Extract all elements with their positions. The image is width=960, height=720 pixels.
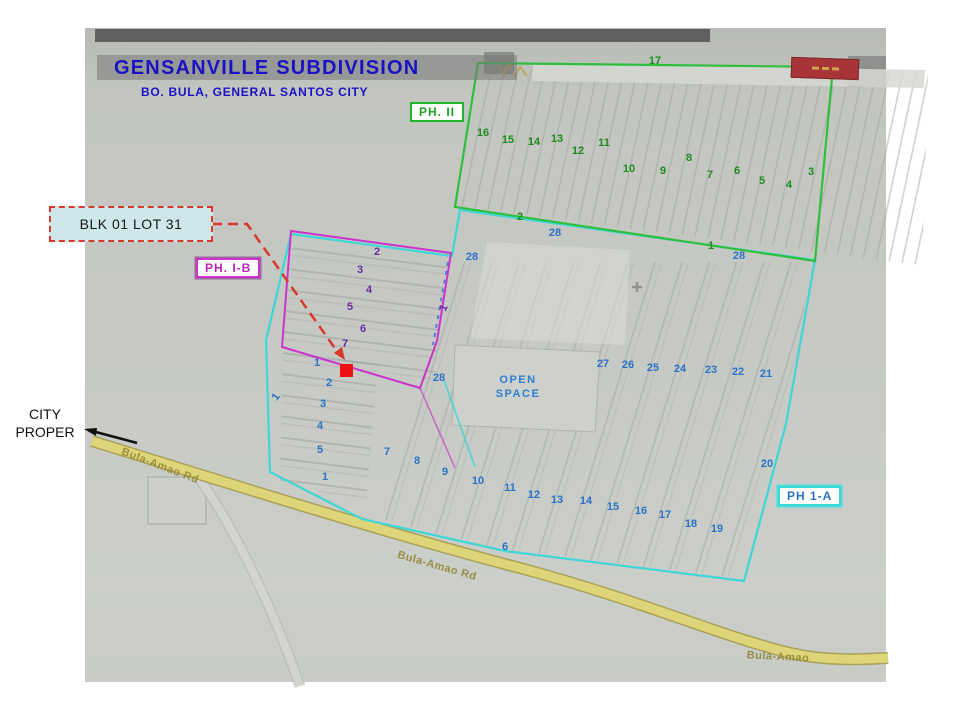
phase1a-block-20: 20 xyxy=(761,458,773,470)
red-stamp-badge xyxy=(791,57,860,80)
phase1a-block-7: 7 xyxy=(384,446,390,458)
phase1a-block-26: 26 xyxy=(622,359,634,371)
road-name-Bula-Amao Rd: Bula-Amao Rd xyxy=(120,446,201,487)
phase2-block-16: 16 xyxy=(477,127,489,139)
phase1a-block-28: 28 xyxy=(433,372,445,384)
phase1a-block-4: 4 xyxy=(317,420,323,432)
phase-badge-ph2: PH. II xyxy=(410,102,464,122)
phase1a-block-28: 28 xyxy=(549,227,561,239)
open-space-line1: OPEN xyxy=(499,374,536,386)
phase1a-block-27: 27 xyxy=(597,358,609,370)
phase1a-block-22: 22 xyxy=(732,366,744,378)
phase1a-block-3: 3 xyxy=(320,398,326,410)
city-proper-line1: CITY xyxy=(29,406,61,422)
phase2-block-4: 4 xyxy=(786,179,792,191)
road-name-Bula-Amao: Bula-Amao xyxy=(746,649,809,664)
phase1a-block-18: 18 xyxy=(685,518,697,530)
phase1a-block-28: 28 xyxy=(733,250,745,262)
text-overlay: GENSANVILLE SUBDIVISION BO. BULA, GENERA… xyxy=(0,0,960,720)
phase2-block-7: 7 xyxy=(707,169,713,181)
phase2-block-17: 17 xyxy=(649,55,661,67)
phase1a-block-9: 9 xyxy=(442,466,448,478)
phase1a-block-5: 5 xyxy=(317,444,323,456)
phase2-block-6: 6 xyxy=(734,165,740,177)
phase1b-block-5: 5 xyxy=(347,301,353,313)
phase1b-block-7: 7 xyxy=(342,338,348,350)
phase1a-block-21: 21 xyxy=(760,368,772,380)
phase2-block-12: 12 xyxy=(572,145,584,157)
page-title: GENSANVILLE SUBDIVISION xyxy=(114,57,419,80)
open-space-label: OPEN SPACE xyxy=(478,373,558,401)
phase1a-block-24: 24 xyxy=(674,363,686,375)
phase1a-block-12: 12 xyxy=(528,489,540,501)
open-space-line2: SPACE xyxy=(496,388,541,400)
phase-badge-ph1b: PH. I-B xyxy=(196,258,260,278)
phase1b-block-1: 1 xyxy=(437,303,450,314)
phase1a-block-15: 15 xyxy=(607,501,619,513)
phase2-block-15: 15 xyxy=(502,134,514,146)
phase2-block-10: 10 xyxy=(623,163,635,175)
road-name-Bula-Amao Rd: Bula-Amao Rd xyxy=(396,549,478,583)
phase2-block-14: 14 xyxy=(528,136,540,148)
phase1a-block-2: 2 xyxy=(326,377,332,389)
city-proper-line2: PROPER xyxy=(15,424,74,440)
blk01-lot31-callout: BLK 01 LOT 31 xyxy=(49,206,213,242)
phase1a-block-6: 6 xyxy=(502,541,508,553)
phase1a-block-16: 16 xyxy=(635,505,647,517)
phase1b-block-2: 2 xyxy=(374,246,380,258)
phase1a-block-14: 14 xyxy=(580,495,592,507)
phase2-block-13: 13 xyxy=(551,133,563,145)
phase2-block-9: 9 xyxy=(660,165,666,177)
phase2-block-3: 3 xyxy=(808,166,814,178)
scanned-subdivision-map-page: GENSANVILLE SUBDIVISION BO. BULA, GENERA… xyxy=(0,0,960,720)
phase1a-block-28: 28 xyxy=(466,251,478,263)
phase1b-block-3: 3 xyxy=(357,264,363,276)
phase1b-block-4: 4 xyxy=(366,284,372,296)
phase1a-block-1: 1 xyxy=(314,357,320,369)
phase-badge-ph1a: PH 1-A xyxy=(778,486,841,506)
phase1a-block-23: 23 xyxy=(705,364,717,376)
phase1a-block-17: 17 xyxy=(659,509,671,521)
phase1a-block-13: 13 xyxy=(551,494,563,506)
phase2-block-1: 1 xyxy=(708,240,714,252)
phase1a-block-8: 8 xyxy=(414,455,420,467)
phase1a-block-1: 1 xyxy=(322,471,328,483)
phase2-block-8: 8 xyxy=(686,152,692,164)
phase1a-block-1: 1 xyxy=(269,391,282,403)
phase1a-block-10: 10 xyxy=(472,475,484,487)
phase1a-block-25: 25 xyxy=(647,362,659,374)
phase1a-block-19: 19 xyxy=(711,523,723,535)
phase1a-block-11: 11 xyxy=(504,482,516,494)
phase2-block-5: 5 xyxy=(759,175,765,187)
city-proper-label: CITY PROPER xyxy=(12,405,78,441)
phase2-block-11: 11 xyxy=(598,137,610,149)
page-subtitle: BO. BULA, GENERAL SANTOS CITY xyxy=(141,85,368,99)
phase1b-block-6: 6 xyxy=(360,323,366,335)
phase2-block-2: 2 xyxy=(517,211,523,223)
